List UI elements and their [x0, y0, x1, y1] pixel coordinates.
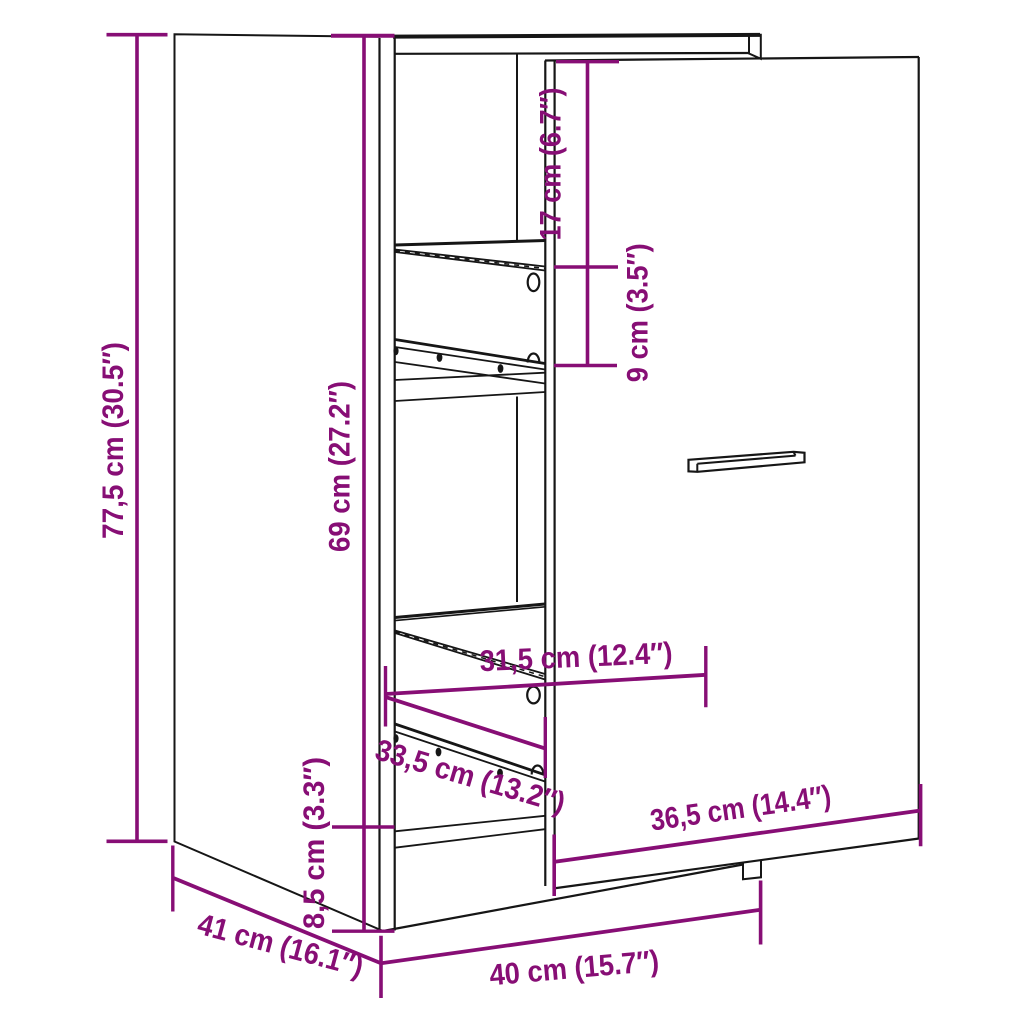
svg-text:9 cm (3.5″): 9 cm (3.5″)	[622, 243, 655, 382]
svg-text:17 cm (6.7″): 17 cm (6.7″)	[535, 88, 568, 241]
svg-text:69 cm (27.2″): 69 cm (27.2″)	[324, 381, 357, 552]
svg-text:77,5 cm (30.5″): 77,5 cm (30.5″)	[97, 342, 130, 539]
svg-text:8,5 cm (3.3″): 8,5 cm (3.3″)	[298, 757, 331, 929]
